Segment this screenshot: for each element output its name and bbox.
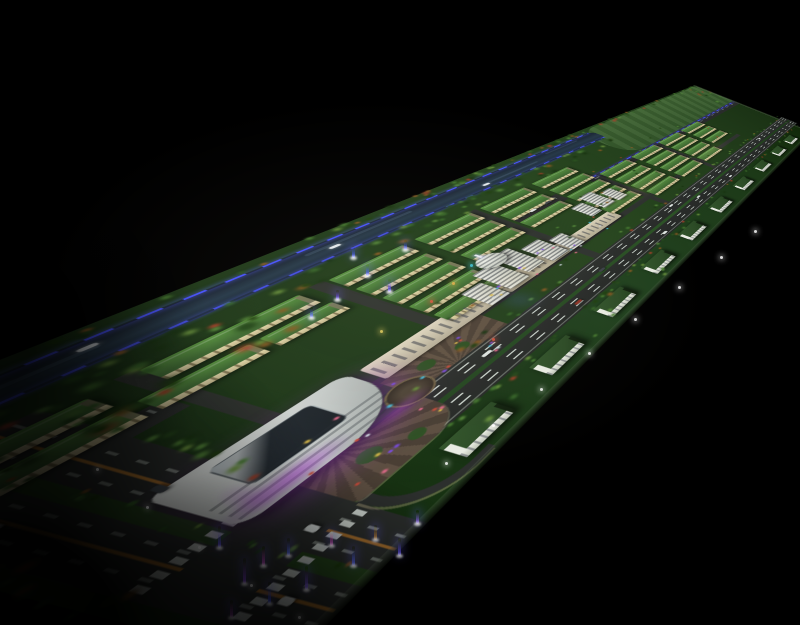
street-lamp: [634, 318, 637, 321]
street-lamp: [678, 286, 681, 289]
street-lamp: [720, 256, 723, 259]
street-lamp: [754, 230, 757, 233]
photo-stage: [0, 0, 800, 625]
model-board: [0, 85, 800, 625]
